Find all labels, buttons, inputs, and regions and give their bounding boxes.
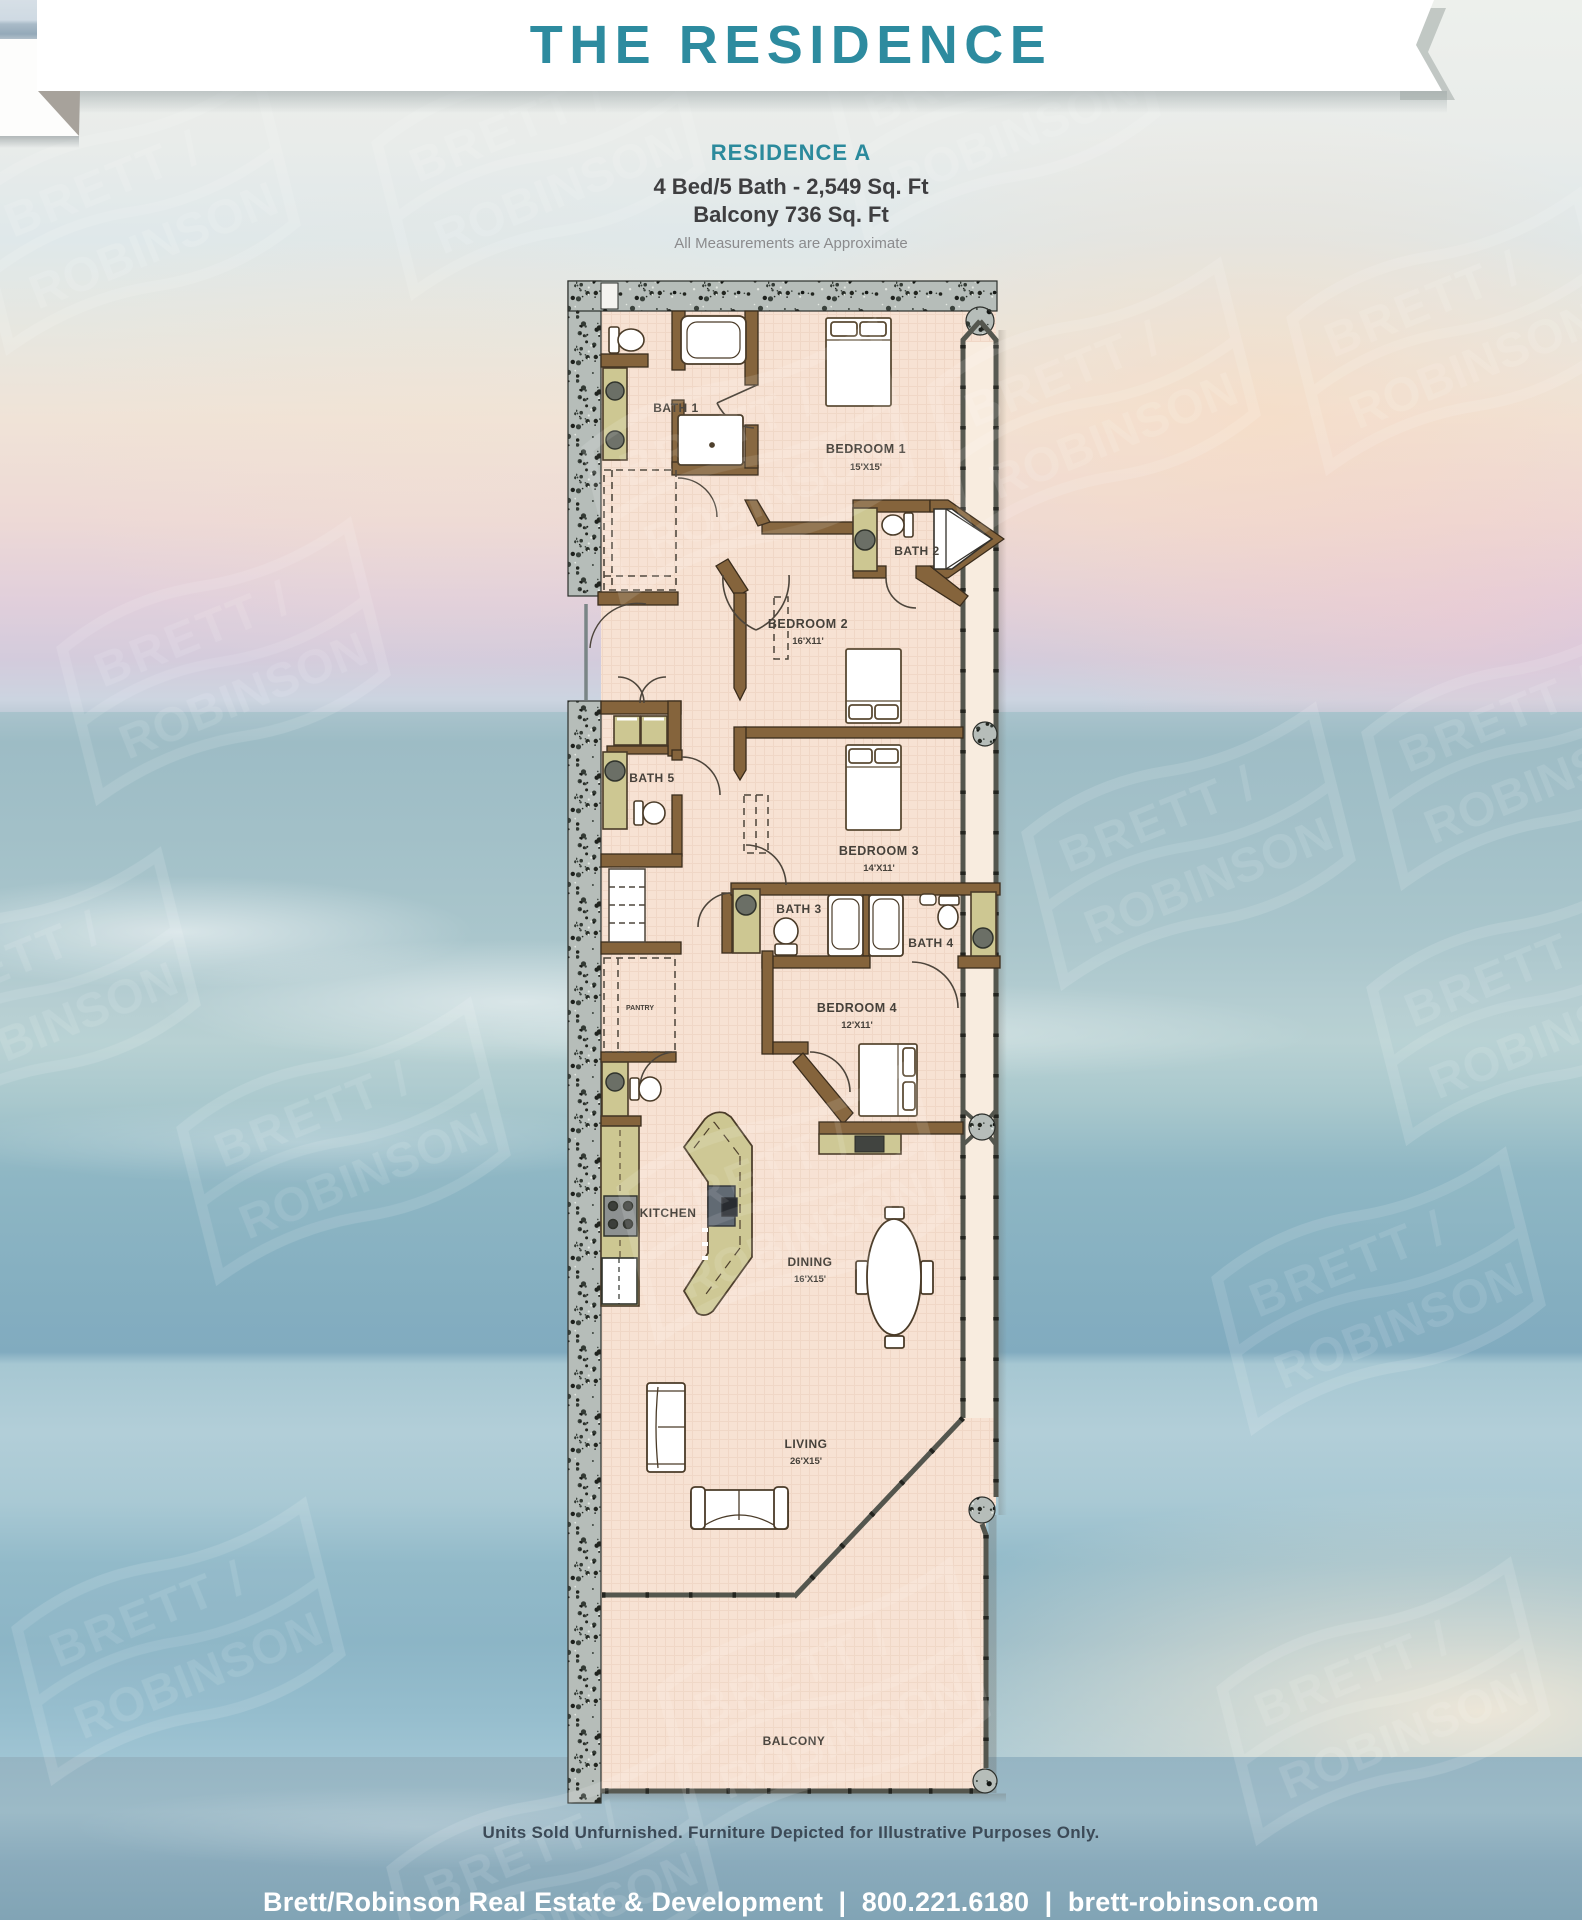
svg-text:BEDROOM 2: BEDROOM 2 bbox=[768, 617, 848, 631]
svg-text:4 Bed/5 Bath - 2,549 Sq. Ft: 4 Bed/5 Bath - 2,549 Sq. Ft bbox=[653, 174, 929, 199]
svg-text:All Measurements are Approxima: All Measurements are Approximate bbox=[674, 235, 907, 252]
svg-text:BATH 3: BATH 3 bbox=[776, 902, 821, 916]
svg-text:12'X11': 12'X11' bbox=[841, 1020, 872, 1031]
svg-text:PANTRY: PANTRY bbox=[626, 1005, 654, 1012]
svg-text:Units Sold Unfurnished. Furnit: Units Sold Unfurnished. Furniture Depict… bbox=[483, 1823, 1100, 1842]
svg-text:Balcony 736 Sq. Ft: Balcony 736 Sq. Ft bbox=[693, 202, 889, 227]
svg-text:BATH 2: BATH 2 bbox=[894, 544, 939, 558]
svg-text:26'X15': 26'X15' bbox=[790, 1456, 822, 1467]
svg-text:BATH 5: BATH 5 bbox=[629, 771, 674, 785]
svg-text:THE RESIDENCE: THE RESIDENCE bbox=[530, 15, 1053, 75]
svg-text:16'X11': 16'X11' bbox=[792, 636, 823, 647]
svg-text:Brett/Robinson Real Estate & D: Brett/Robinson Real Estate & Development… bbox=[263, 1887, 1319, 1917]
svg-text:BEDROOM 3: BEDROOM 3 bbox=[839, 844, 919, 858]
svg-text:RESIDENCE A: RESIDENCE A bbox=[711, 140, 872, 165]
svg-text:14'X11': 14'X11' bbox=[863, 863, 894, 874]
svg-text:LIVING: LIVING bbox=[784, 1437, 827, 1451]
svg-text:BATH 4: BATH 4 bbox=[908, 936, 953, 950]
svg-text:BEDROOM 4: BEDROOM 4 bbox=[817, 1001, 897, 1015]
